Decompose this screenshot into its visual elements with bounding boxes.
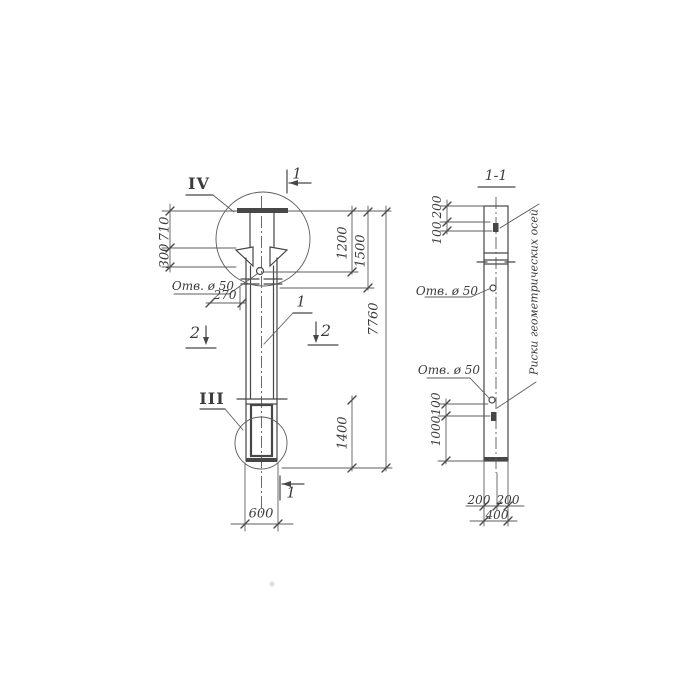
part-label: 1 [296,295,306,310]
dim-270: 270 [214,289,237,301]
dim-100-top: 100 [431,222,443,245]
section-view-title: 1-1 [485,169,508,183]
hole-front [257,268,264,275]
section-2-right-arrow [313,335,319,343]
column-cap [237,208,288,213]
technical-drawing: IV 710 300 Отв. ø 50 270 1 1 2 2 1 III 1… [0,0,700,700]
section-cut-2-right-label: 2 [321,323,331,339]
hole-label-section-lower: Отв. ø 50 [418,364,480,376]
right-console-barb [270,247,287,266]
section-cut-2-left-label: 2 [190,325,200,341]
dim-100-bottom: 100 [430,393,442,416]
dim-600: 600 [249,508,274,521]
dim-200-top: 200 [431,196,443,219]
dim-200-bottom-left: 200 [468,494,491,506]
axis-mark-bottom [491,412,497,421]
column-bottom [246,458,277,462]
section-cut-1-bottom-label: 1 [286,486,296,501]
dim-1400: 1400 [337,416,350,449]
dim-200-bottom-right: 200 [497,494,520,506]
dim-1500: 1500 [355,234,368,267]
section-2-left-arrow [203,337,209,345]
dim-400: 400 [486,509,509,521]
left-console-barb [236,247,253,266]
dim-1000: 1000 [430,416,442,447]
hole-section-upper [490,285,496,291]
axes-note: Риски геометрических осей [529,209,540,375]
dim-710: 710 [159,217,172,242]
hole-section-lower [489,397,495,403]
detail-marker-iii: III [199,391,224,407]
hole-label-section-upper: Отв. ø 50 [416,285,478,297]
dim-7760: 7760 [368,302,381,335]
axis-mark-top [493,223,499,232]
dim-300: 300 [159,244,172,269]
section-view-linework [477,197,515,473]
section-cut-1-top-label: 1 [292,167,302,182]
drawing-linework [0,0,700,700]
dim-1200: 1200 [337,226,350,259]
detail-marker-iv: IV [188,176,210,192]
front-view-markers [186,170,338,500]
